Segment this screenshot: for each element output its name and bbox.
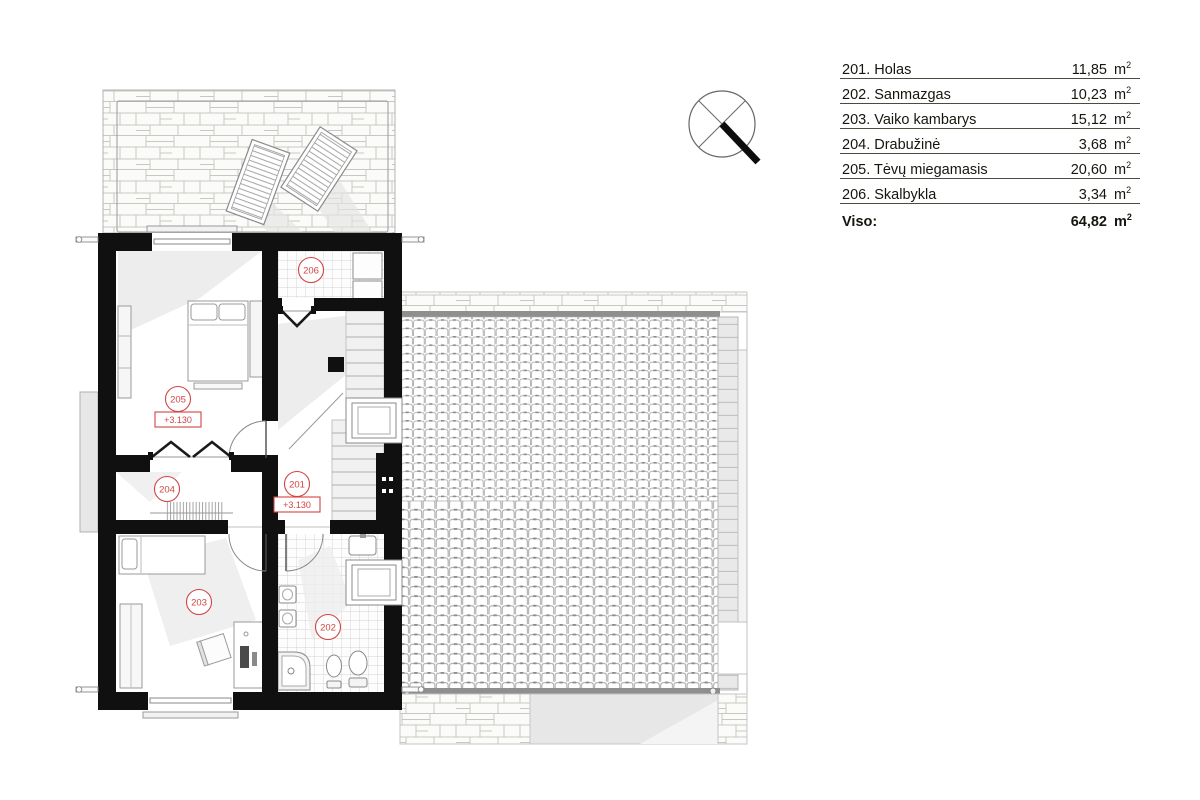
laundry-counter <box>353 253 382 279</box>
legend-row: 201. Holas 11,85 m2 <box>840 54 1140 79</box>
svg-text:204: 204 <box>159 485 175 496</box>
sink-icon <box>279 586 296 603</box>
exterior-ledge <box>80 392 98 532</box>
dresser <box>118 306 131 398</box>
pillow <box>122 539 137 569</box>
desk-item <box>240 646 249 668</box>
downspout-icon <box>710 688 716 694</box>
room-area: 11,85 <box>1061 59 1107 82</box>
room-label-202: 202 <box>316 615 341 640</box>
room-label-206: 206 <box>299 258 324 283</box>
side-closet <box>250 301 264 377</box>
roof-right <box>400 292 747 744</box>
room-area: 15,12 <box>1061 109 1107 132</box>
pillow <box>191 304 217 320</box>
svg-text:+3.130: +3.130 <box>164 415 192 425</box>
floorplan-sheet: 205 +3.130 206 204 201 +3.130 203 <box>0 0 1200 800</box>
area-unit: m2 <box>1114 154 1138 182</box>
legend-row: 203. Vaiko kambarys 15,12 m2 <box>840 104 1140 129</box>
room-name: 205. Tėvų miegamasis <box>842 159 1061 182</box>
area-unit: m2 <box>1114 54 1138 82</box>
room-label-204: 204 <box>155 477 180 502</box>
gutter <box>400 311 720 317</box>
total-area: 64,82 <box>1061 209 1107 236</box>
room-area: 3,68 <box>1061 134 1107 157</box>
room-name: 201. Holas <box>842 59 1061 82</box>
toilet-icon <box>349 651 367 687</box>
svg-text:203: 203 <box>191 598 207 609</box>
clothes-rail <box>166 502 224 523</box>
room-label-203: 203 <box>187 590 212 615</box>
room-name: 206. Skalbykla <box>842 184 1061 207</box>
legend-row: 204. Drabužinė 3,68 m2 <box>840 129 1140 154</box>
sink-icon <box>279 610 296 627</box>
window-bottom <box>143 692 238 718</box>
room-area: 20,60 <box>1061 159 1107 182</box>
area-unit: m2 <box>1114 179 1138 207</box>
area-unit: m2 <box>1114 104 1138 132</box>
desk <box>234 622 266 688</box>
vanity-sink-icon <box>349 533 376 555</box>
desk-item <box>252 652 257 666</box>
north-arrow-icon <box>689 91 758 162</box>
room-area: 3,34 <box>1061 184 1107 207</box>
svg-text:206: 206 <box>303 266 319 277</box>
window-bath <box>346 560 402 605</box>
area-unit: m2 <box>1114 204 1138 236</box>
area-unit: m2 <box>1114 129 1138 157</box>
bidet-icon <box>327 655 342 688</box>
shower-icon <box>278 652 310 690</box>
area-unit: m2 <box>1114 79 1138 107</box>
window-stairs <box>346 398 402 443</box>
svg-text:+3.130: +3.130 <box>283 500 311 510</box>
gutter <box>400 688 720 694</box>
stair-newel <box>328 357 344 372</box>
area-legend-table: 201. Holas 11,85 m2 202. Sanmazgas 10,23… <box>840 54 1140 230</box>
legend-row: 202. Sanmazgas 10,23 m2 <box>840 79 1140 104</box>
svg-text:201: 201 <box>289 480 305 491</box>
legend-row: 205. Tėvų miegamasis 20,60 m2 <box>840 154 1140 179</box>
svg-text:202: 202 <box>320 623 336 634</box>
room-name: 204. Drabužinė <box>842 134 1061 157</box>
room-name: 202. Sanmazgas <box>842 84 1061 107</box>
room-area: 10,23 <box>1061 84 1107 107</box>
pillow <box>219 304 245 320</box>
legend-total-row: Viso: 64,82 m2 <box>840 204 1140 230</box>
total-label: Viso: <box>842 209 1061 236</box>
room-name: 203. Vaiko kambarys <box>842 109 1061 132</box>
roof-terrace-top <box>103 90 395 233</box>
window-top <box>147 226 237 251</box>
legend-row: 206. Skalbykla 3,34 m2 <box>840 179 1140 204</box>
svg-text:205: 205 <box>170 395 186 406</box>
bed-bench <box>194 383 242 389</box>
